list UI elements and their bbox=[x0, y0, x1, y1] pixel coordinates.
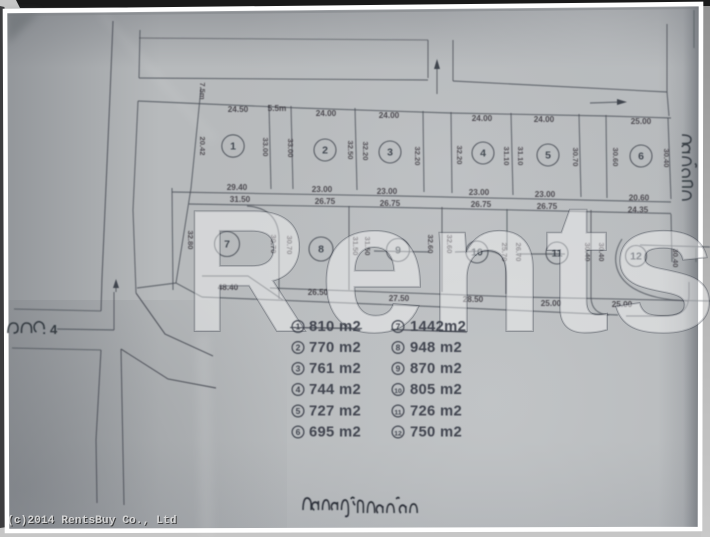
svg-text:24.50: 24.50 bbox=[228, 105, 249, 114]
svg-text:8: 8 bbox=[396, 343, 401, 353]
svg-text:33.00: 33.00 bbox=[261, 137, 270, 156]
svg-text:4: 4 bbox=[480, 148, 486, 160]
svg-text:R: R bbox=[183, 173, 309, 368]
svg-text:24.00: 24.00 bbox=[534, 115, 555, 124]
svg-text:25.00: 25.00 bbox=[631, 117, 652, 126]
svg-text:11: 11 bbox=[394, 410, 401, 417]
svg-text:2: 2 bbox=[296, 343, 301, 353]
svg-text:948 m2: 948 m2 bbox=[410, 340, 462, 356]
svg-text:744 m2: 744 m2 bbox=[309, 382, 361, 398]
svg-text:2: 2 bbox=[322, 145, 328, 157]
svg-text:20.42: 20.42 bbox=[198, 136, 207, 155]
svg-text:32.20: 32.20 bbox=[413, 146, 422, 165]
svg-text:32.50: 32.50 bbox=[346, 140, 355, 159]
svg-text:810 m2: 810 m2 bbox=[309, 319, 361, 335]
svg-text:5.5m: 5.5m bbox=[268, 104, 287, 113]
svg-text:1: 1 bbox=[296, 322, 301, 332]
svg-text:24.00: 24.00 bbox=[379, 111, 400, 120]
svg-text:4: 4 bbox=[296, 385, 301, 395]
svg-text:3: 3 bbox=[387, 147, 393, 159]
svg-text:695 m2: 695 m2 bbox=[309, 425, 361, 441]
svg-text:9: 9 bbox=[396, 364, 401, 374]
svg-text:32.20: 32.20 bbox=[455, 145, 464, 164]
svg-text:31.10: 31.10 bbox=[516, 146, 525, 165]
svg-text:770 m2: 770 m2 bbox=[309, 340, 361, 356]
svg-text:24.00: 24.00 bbox=[316, 109, 337, 118]
svg-text:6: 6 bbox=[296, 427, 301, 437]
svg-text:(c)2014 RentsBuy Co., Ltd: (c)2014 RentsBuy Co., Ltd bbox=[7, 515, 176, 527]
svg-text:10: 10 bbox=[394, 388, 402, 395]
svg-text:7.5m: 7.5m bbox=[198, 82, 207, 100]
svg-text:761 m2: 761 m2 bbox=[309, 361, 361, 377]
svg-text:5: 5 bbox=[296, 406, 301, 416]
svg-text:727 m2: 727 m2 bbox=[309, 404, 361, 420]
svg-text:5: 5 bbox=[545, 150, 551, 162]
svg-text:12: 12 bbox=[394, 431, 402, 438]
svg-text:31.10: 31.10 bbox=[502, 146, 511, 165]
svg-text:: 4: : 4 bbox=[42, 322, 58, 337]
svg-text:750 m2: 750 m2 bbox=[410, 425, 462, 441]
svg-text:726 m2: 726 m2 bbox=[410, 404, 462, 420]
svg-text:6: 6 bbox=[638, 151, 644, 163]
svg-text:ents: ents bbox=[319, 164, 710, 371]
svg-text:805 m2: 805 m2 bbox=[410, 382, 462, 398]
svg-text:1442m2: 1442m2 bbox=[410, 319, 466, 335]
svg-text:3: 3 bbox=[296, 364, 301, 374]
svg-text:870 m2: 870 m2 bbox=[410, 361, 462, 377]
svg-text:32.20: 32.20 bbox=[361, 141, 370, 160]
svg-text:1: 1 bbox=[230, 141, 236, 153]
svg-text:24.00: 24.00 bbox=[472, 114, 493, 123]
svg-text:33.00: 33.00 bbox=[286, 138, 295, 157]
